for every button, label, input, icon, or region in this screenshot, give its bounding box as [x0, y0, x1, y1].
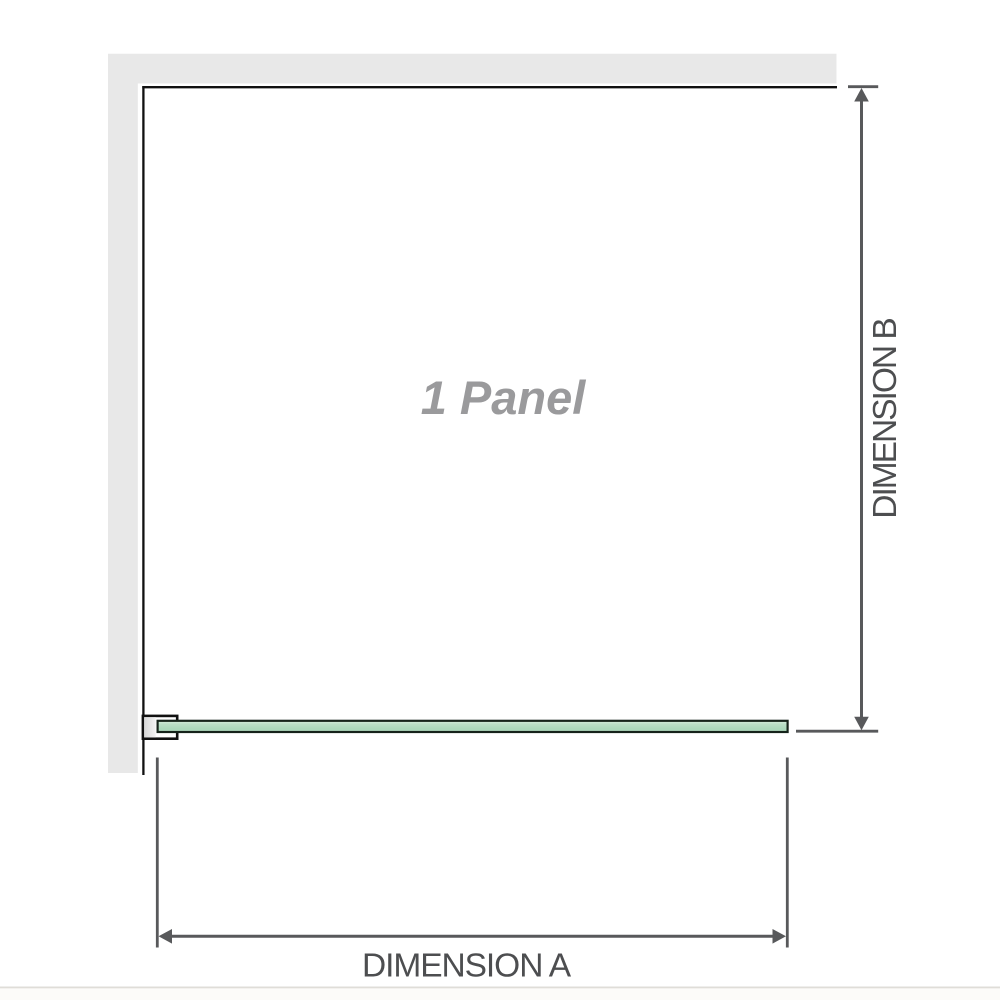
svg-text:DIMENSION B: DIMENSION B	[867, 319, 904, 519]
svg-text:DIMENSION A: DIMENSION A	[362, 948, 572, 985]
svg-text:1 Panel: 1 Panel	[421, 371, 587, 424]
